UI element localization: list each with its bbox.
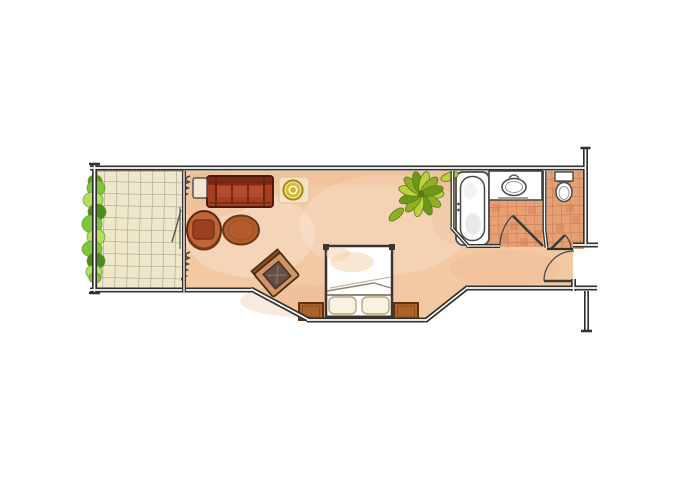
bathtub-shading (465, 213, 481, 235)
balcony-tiled-floor (97, 171, 184, 289)
tile-shade-cell (528, 206, 536, 214)
counter-edge (498, 197, 528, 200)
bathtub (456, 172, 489, 245)
sofa-backrest (208, 177, 272, 185)
double-bed (323, 244, 395, 318)
pillow-right (362, 297, 389, 314)
toilet-bowl (556, 183, 572, 202)
tile-shade-cell (492, 204, 500, 212)
oval-coffee-table (223, 216, 259, 245)
tile-shade-cell (572, 216, 580, 224)
bed-post (323, 244, 329, 250)
lamp-bulb (291, 188, 296, 193)
bathtub-faucet-icon (457, 203, 460, 206)
armchair-seat (193, 220, 214, 239)
floor-lamp (279, 177, 309, 203)
tile-shade-cell (566, 204, 574, 212)
tile-shade-cell (556, 224, 564, 232)
bed-post (389, 244, 395, 250)
toilet (555, 172, 573, 202)
pillow-left (329, 297, 356, 314)
plant-center (418, 191, 424, 197)
duvet-shading (326, 247, 350, 261)
bathtub-faucet-icon (457, 209, 460, 212)
floor-plan-page (0, 0, 700, 500)
tile-shade-cell (520, 238, 528, 246)
toilet-tank (555, 172, 573, 181)
sofa-highlight (217, 186, 263, 197)
side-table (193, 178, 207, 198)
tub-armchair (187, 211, 221, 249)
washbasin (489, 171, 542, 200)
floor-plan-drawing (0, 0, 700, 500)
sofa (207, 176, 273, 207)
tile-shade-cell (510, 222, 518, 230)
balcony (97, 171, 184, 289)
bathtub-shading (463, 183, 477, 199)
